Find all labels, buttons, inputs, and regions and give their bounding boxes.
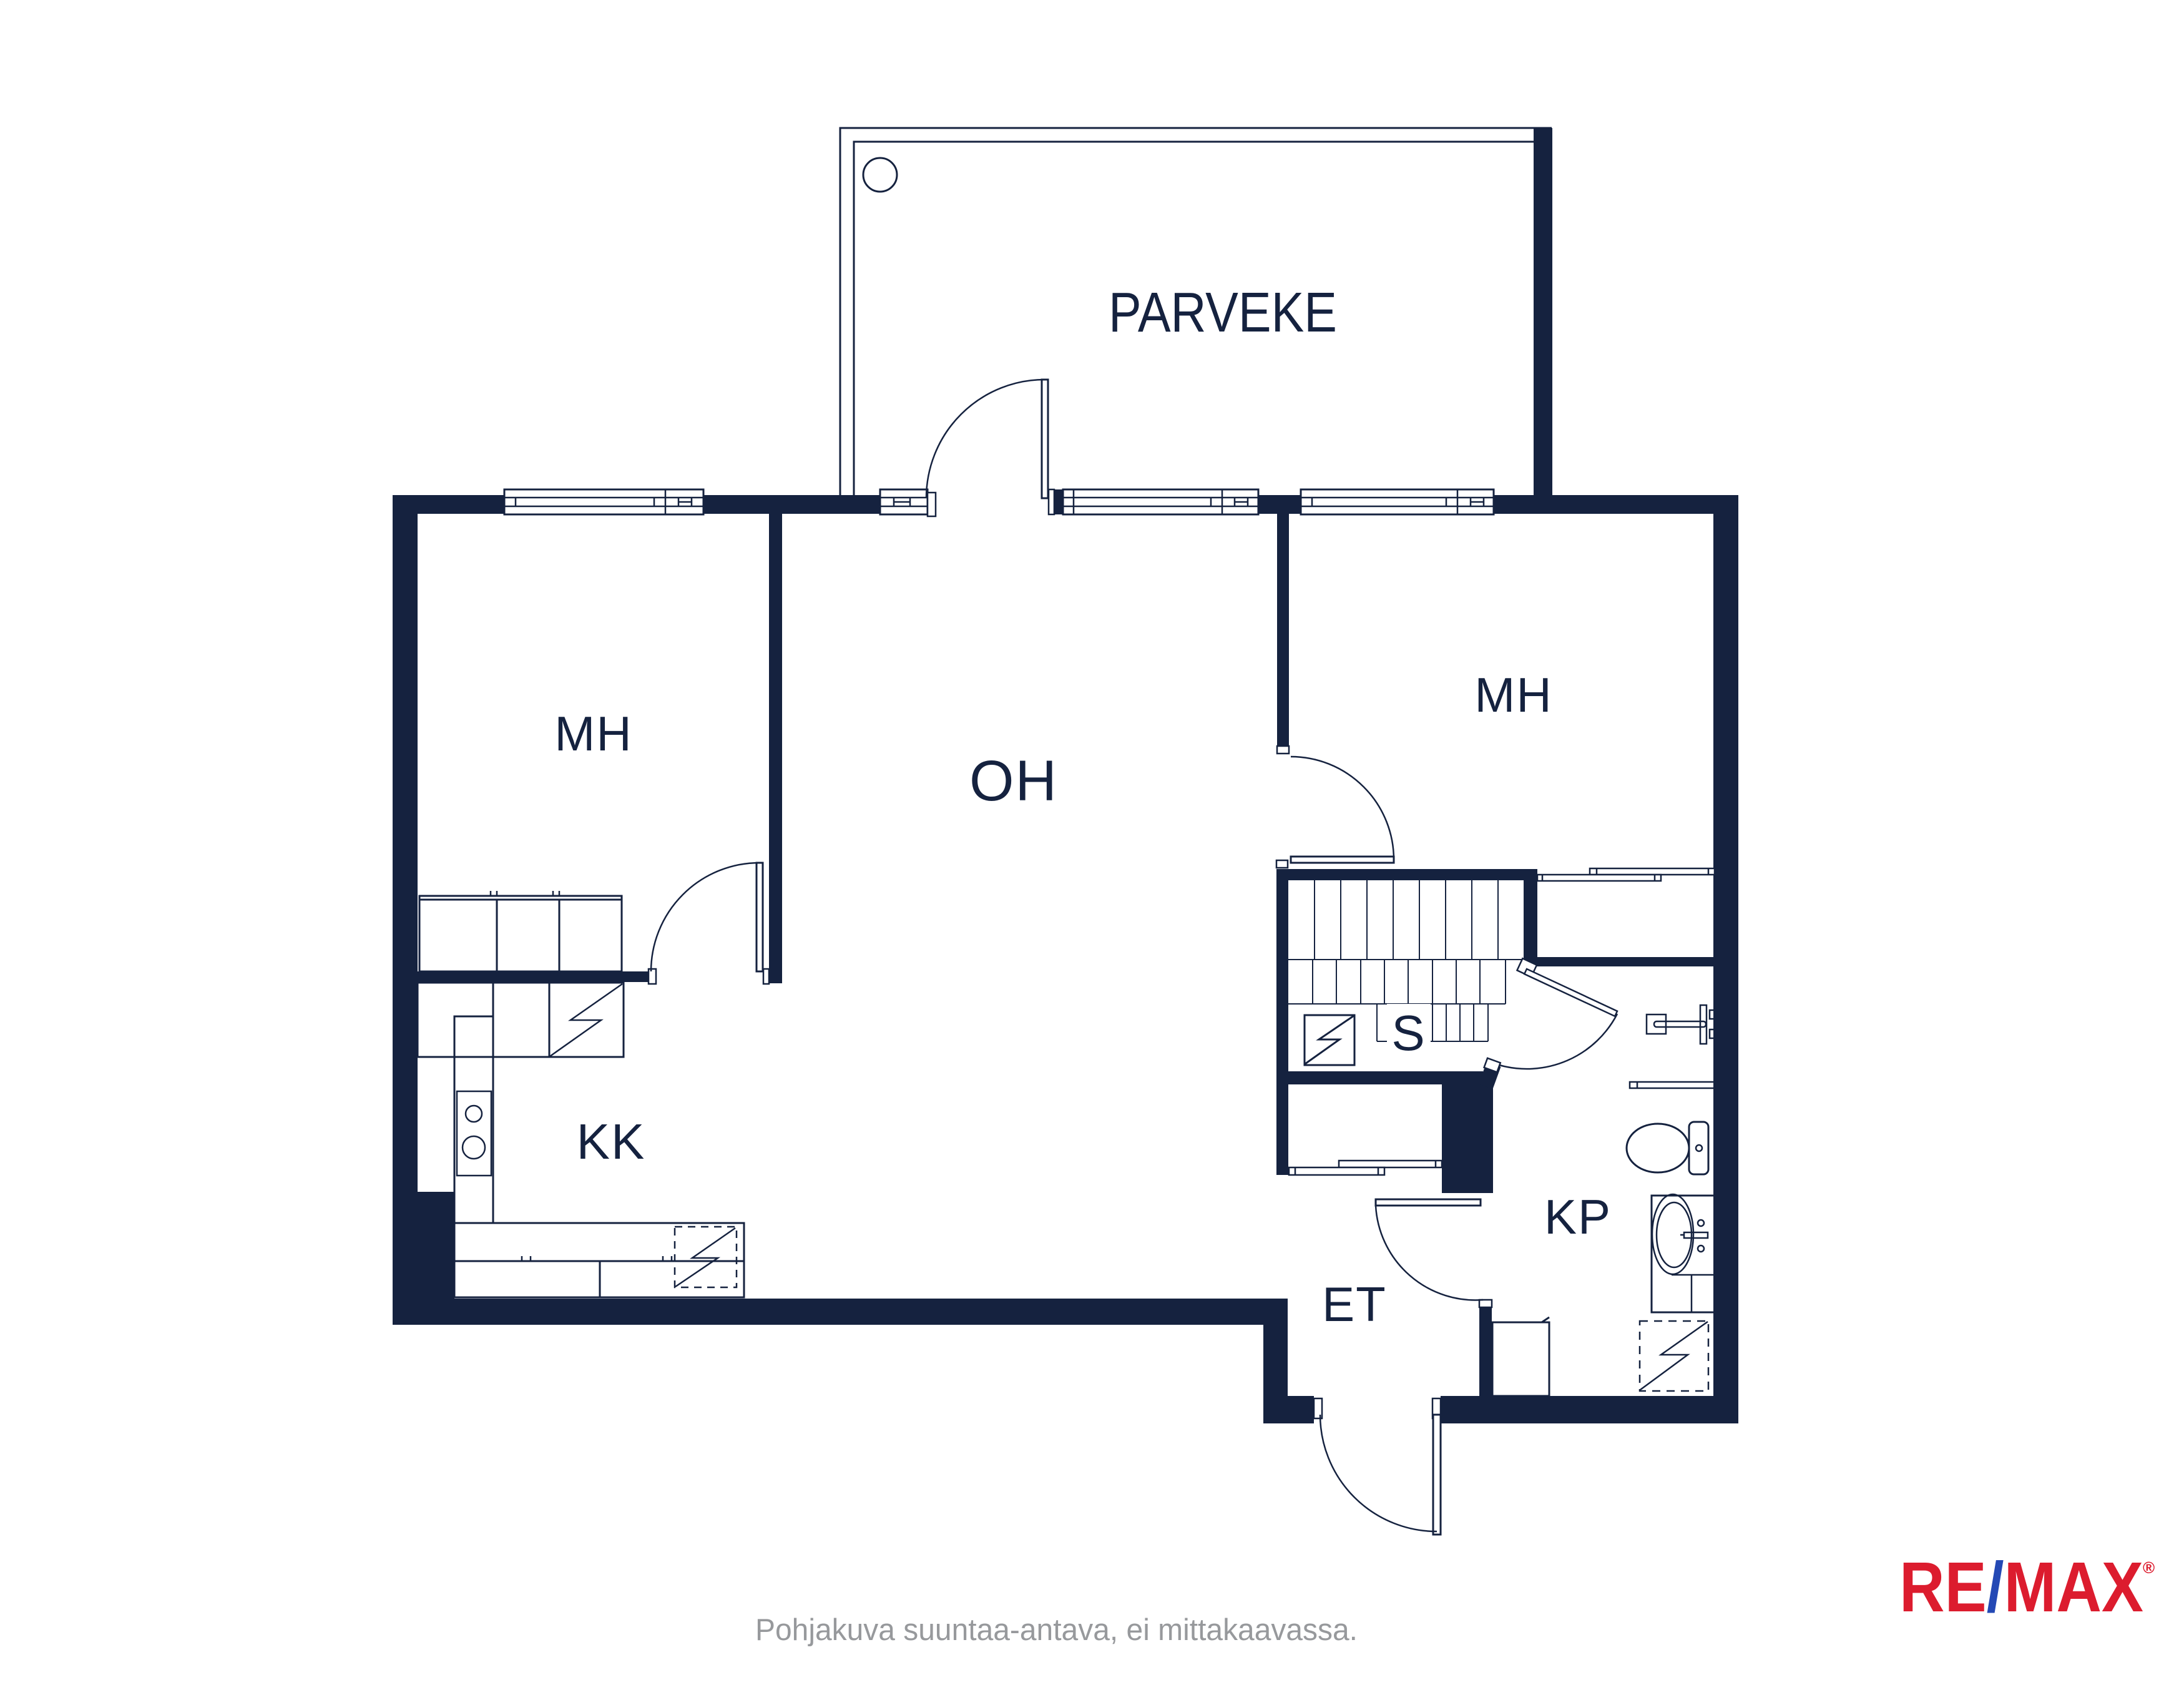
svg-text:ET: ET: [1322, 1277, 1387, 1332]
svg-text:®: ®: [2143, 1558, 2155, 1577]
svg-text:PARVEKE: PARVEKE: [1109, 282, 1337, 344]
svg-text:MH: MH: [1474, 667, 1552, 722]
svg-text:OH: OH: [969, 749, 1058, 813]
svg-text:KK: KK: [577, 1114, 646, 1169]
svg-text:RE/MAX: RE/MAX: [1899, 1548, 2143, 1626]
svg-text:S: S: [1391, 1005, 1426, 1061]
svg-text:KP: KP: [1544, 1189, 1612, 1244]
svg-text:MH: MH: [554, 706, 632, 761]
svg-text:Pohjakuva suuntaa-antava, ei m: Pohjakuva suuntaa-antava, ei mittakaavas…: [755, 1613, 1358, 1647]
